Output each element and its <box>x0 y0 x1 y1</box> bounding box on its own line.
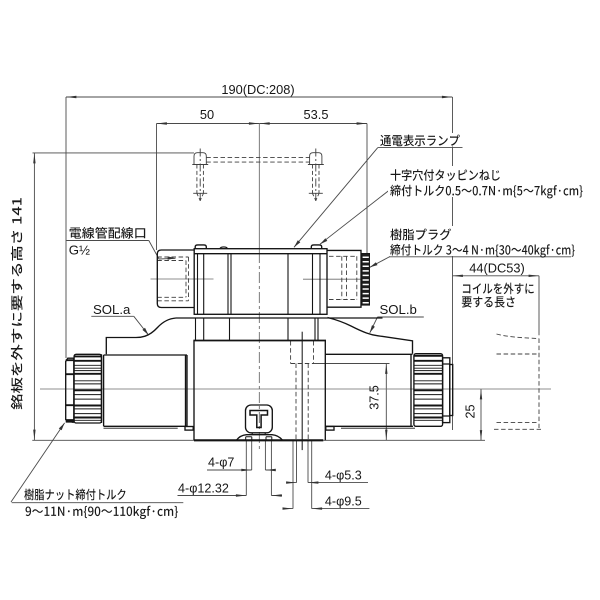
svg-text:50: 50 <box>200 107 214 122</box>
svg-text:G½: G½ <box>69 243 90 258</box>
svg-text:25: 25 <box>464 404 478 418</box>
svg-text:4-φ12.32: 4-φ12.32 <box>178 482 229 496</box>
svg-text:37.5: 37.5 <box>368 385 382 410</box>
svg-text:4-φ9.5: 4-φ9.5 <box>325 495 362 509</box>
svg-text:SOL.a: SOL.a <box>93 302 131 317</box>
svg-text:SOL.b: SOL.b <box>380 302 417 317</box>
svg-text:44(DC53): 44(DC53) <box>469 261 524 276</box>
svg-text:53.5: 53.5 <box>304 107 329 122</box>
svg-text:4-φ7: 4-φ7 <box>208 456 234 470</box>
svg-text:4-φ5.3: 4-φ5.3 <box>325 468 362 482</box>
svg-text:190(DC:208): 190(DC:208) <box>221 82 294 97</box>
